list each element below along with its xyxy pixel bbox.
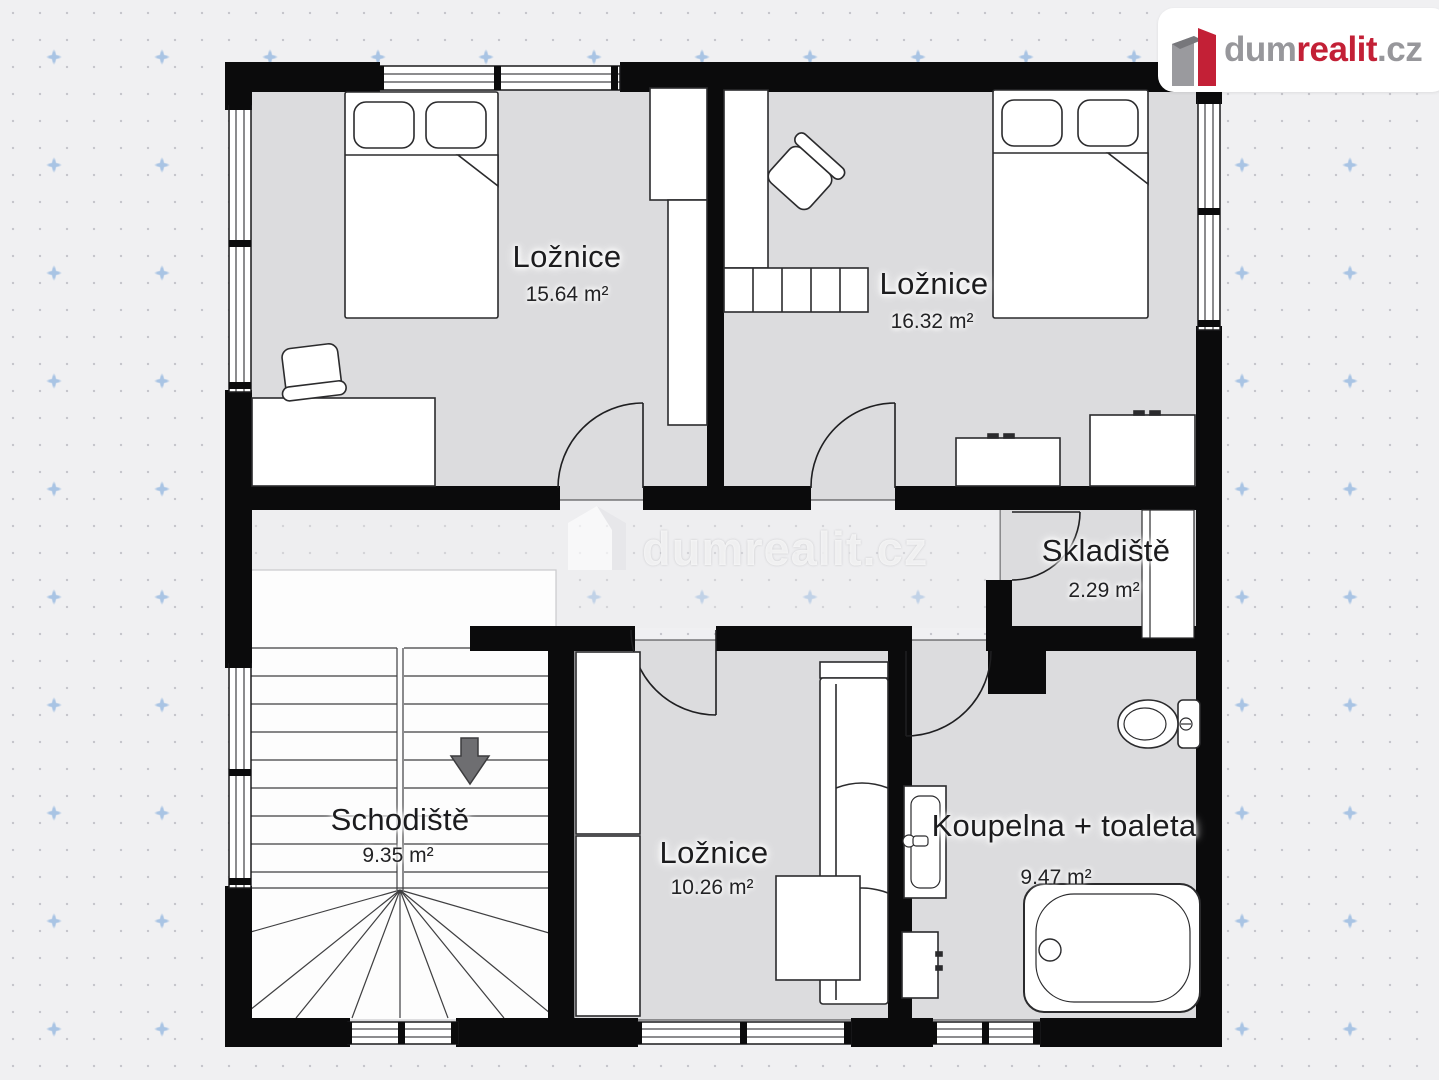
wall-mid-1: [225, 486, 560, 510]
label-bedroom-2: Ložnice: [880, 266, 989, 302]
label-bedroom-3: Ložnice: [660, 835, 769, 871]
toilet-icon: [1118, 700, 1200, 748]
closet-storage: [1142, 510, 1194, 638]
logo-card: dumrealit.cz: [1158, 8, 1439, 92]
area-staircase: 9.35 m²: [362, 844, 433, 868]
wall-hall-bottom-1: [470, 626, 635, 651]
label-bathroom: Koupelna + toaleta: [928, 806, 1200, 846]
wall-bottom-2: [456, 1018, 638, 1047]
window-top: [377, 66, 620, 90]
logo-text-realit: realit: [1296, 30, 1377, 69]
cabinet-bathroom: [902, 932, 942, 998]
desk-bedroom-2: [724, 90, 768, 268]
wall-stairs-bedroom3: [548, 626, 574, 1020]
wall-left-2: [225, 390, 252, 668]
chair-bedroom-1: [277, 342, 347, 401]
wall-hall-bottom-2: [716, 626, 906, 651]
area-bedroom-3: 10.26 m²: [671, 876, 754, 900]
bed-bedroom-2: [993, 90, 1148, 318]
area-storage: 2.29 m²: [1068, 579, 1139, 603]
window-bottom-bathroom: [930, 1022, 1040, 1044]
window-left-upper: [229, 103, 251, 392]
shelf-row-bedroom-2: [724, 268, 868, 312]
dresser-bedroom-2-right: [1090, 411, 1195, 486]
window-left-lower: [229, 661, 251, 888]
watermark-text: dumrealit.cz: [642, 521, 928, 576]
window-bottom-stairs: [345, 1022, 458, 1044]
window-bottom-bedroom3: [635, 1022, 851, 1044]
wall-bathroom-duct: [988, 651, 1046, 694]
wardrobe-bedroom-3: [576, 652, 640, 1016]
logo-building-icon: [1166, 16, 1226, 86]
area-bathroom: 9.47 m²: [1020, 866, 1091, 890]
label-staircase: Schodiště: [331, 802, 470, 838]
label-storage: Skladiště: [1042, 533, 1171, 569]
desk-bedroom-1: [252, 398, 435, 486]
logo-text: dumrealit.cz: [1224, 30, 1422, 70]
logo-text-dum: dum: [1224, 30, 1296, 69]
area-bedroom-2: 16.32 m²: [891, 310, 974, 334]
wall-mid-2: [643, 486, 811, 510]
dresser-bedroom-2-left: [956, 434, 1060, 486]
window-right: [1198, 97, 1220, 330]
table-bedroom-3: [776, 876, 860, 980]
wall-bottom-1: [225, 1018, 350, 1047]
wall-storage-left: [986, 580, 1012, 651]
wall-mid-3: [895, 486, 1222, 510]
wall-left-1: [225, 62, 252, 110]
bathtub-icon: [1024, 884, 1200, 1012]
wall-between-bedrooms: [707, 62, 724, 510]
logo-text-cz: .cz: [1377, 30, 1422, 69]
label-bedroom-1: Ložnice: [513, 239, 622, 275]
bed-bedroom-1: [345, 92, 498, 318]
wall-bottom-3: [851, 1018, 933, 1047]
area-bedroom-1: 15.64 m²: [526, 283, 609, 307]
wall-bottom-4: [1040, 1018, 1222, 1047]
floorplan-page: Ložnice 15.64 m² Ložnice 16.32 m² Skladi…: [0, 0, 1439, 1080]
